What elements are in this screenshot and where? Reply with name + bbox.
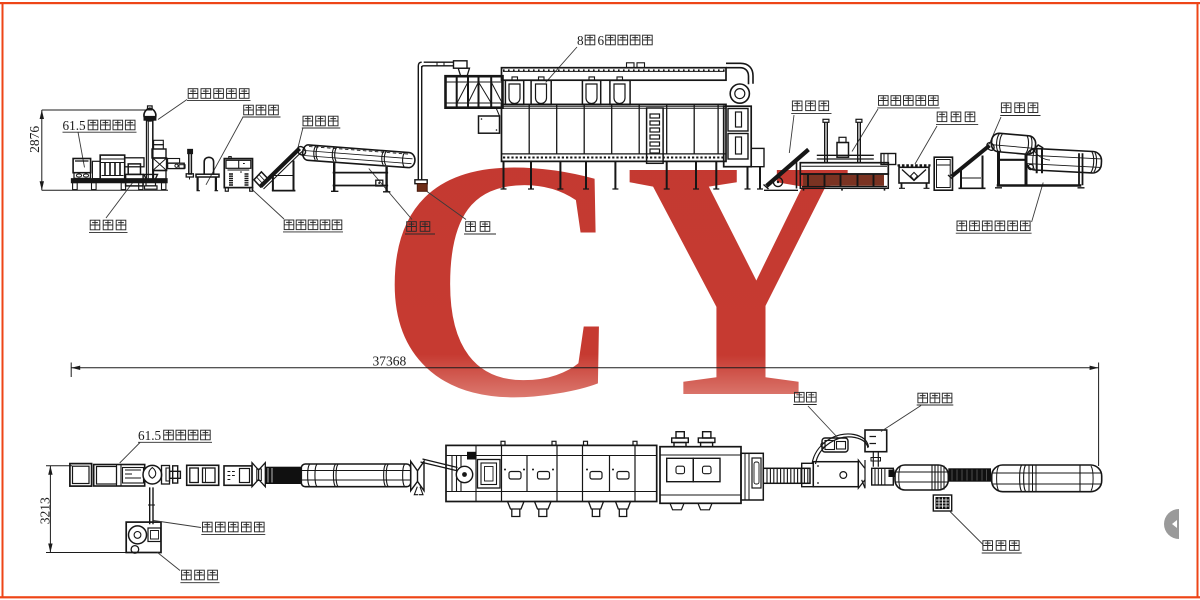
svg-text:2876: 2876	[27, 126, 42, 153]
svg-text:37368: 37368	[373, 353, 407, 368]
svg-text:6: 6	[598, 33, 605, 48]
svg-text:61.5: 61.5	[63, 118, 86, 133]
svg-text:3213: 3213	[38, 497, 53, 524]
svg-text:8: 8	[577, 33, 584, 48]
svg-text:61.5: 61.5	[138, 428, 161, 443]
